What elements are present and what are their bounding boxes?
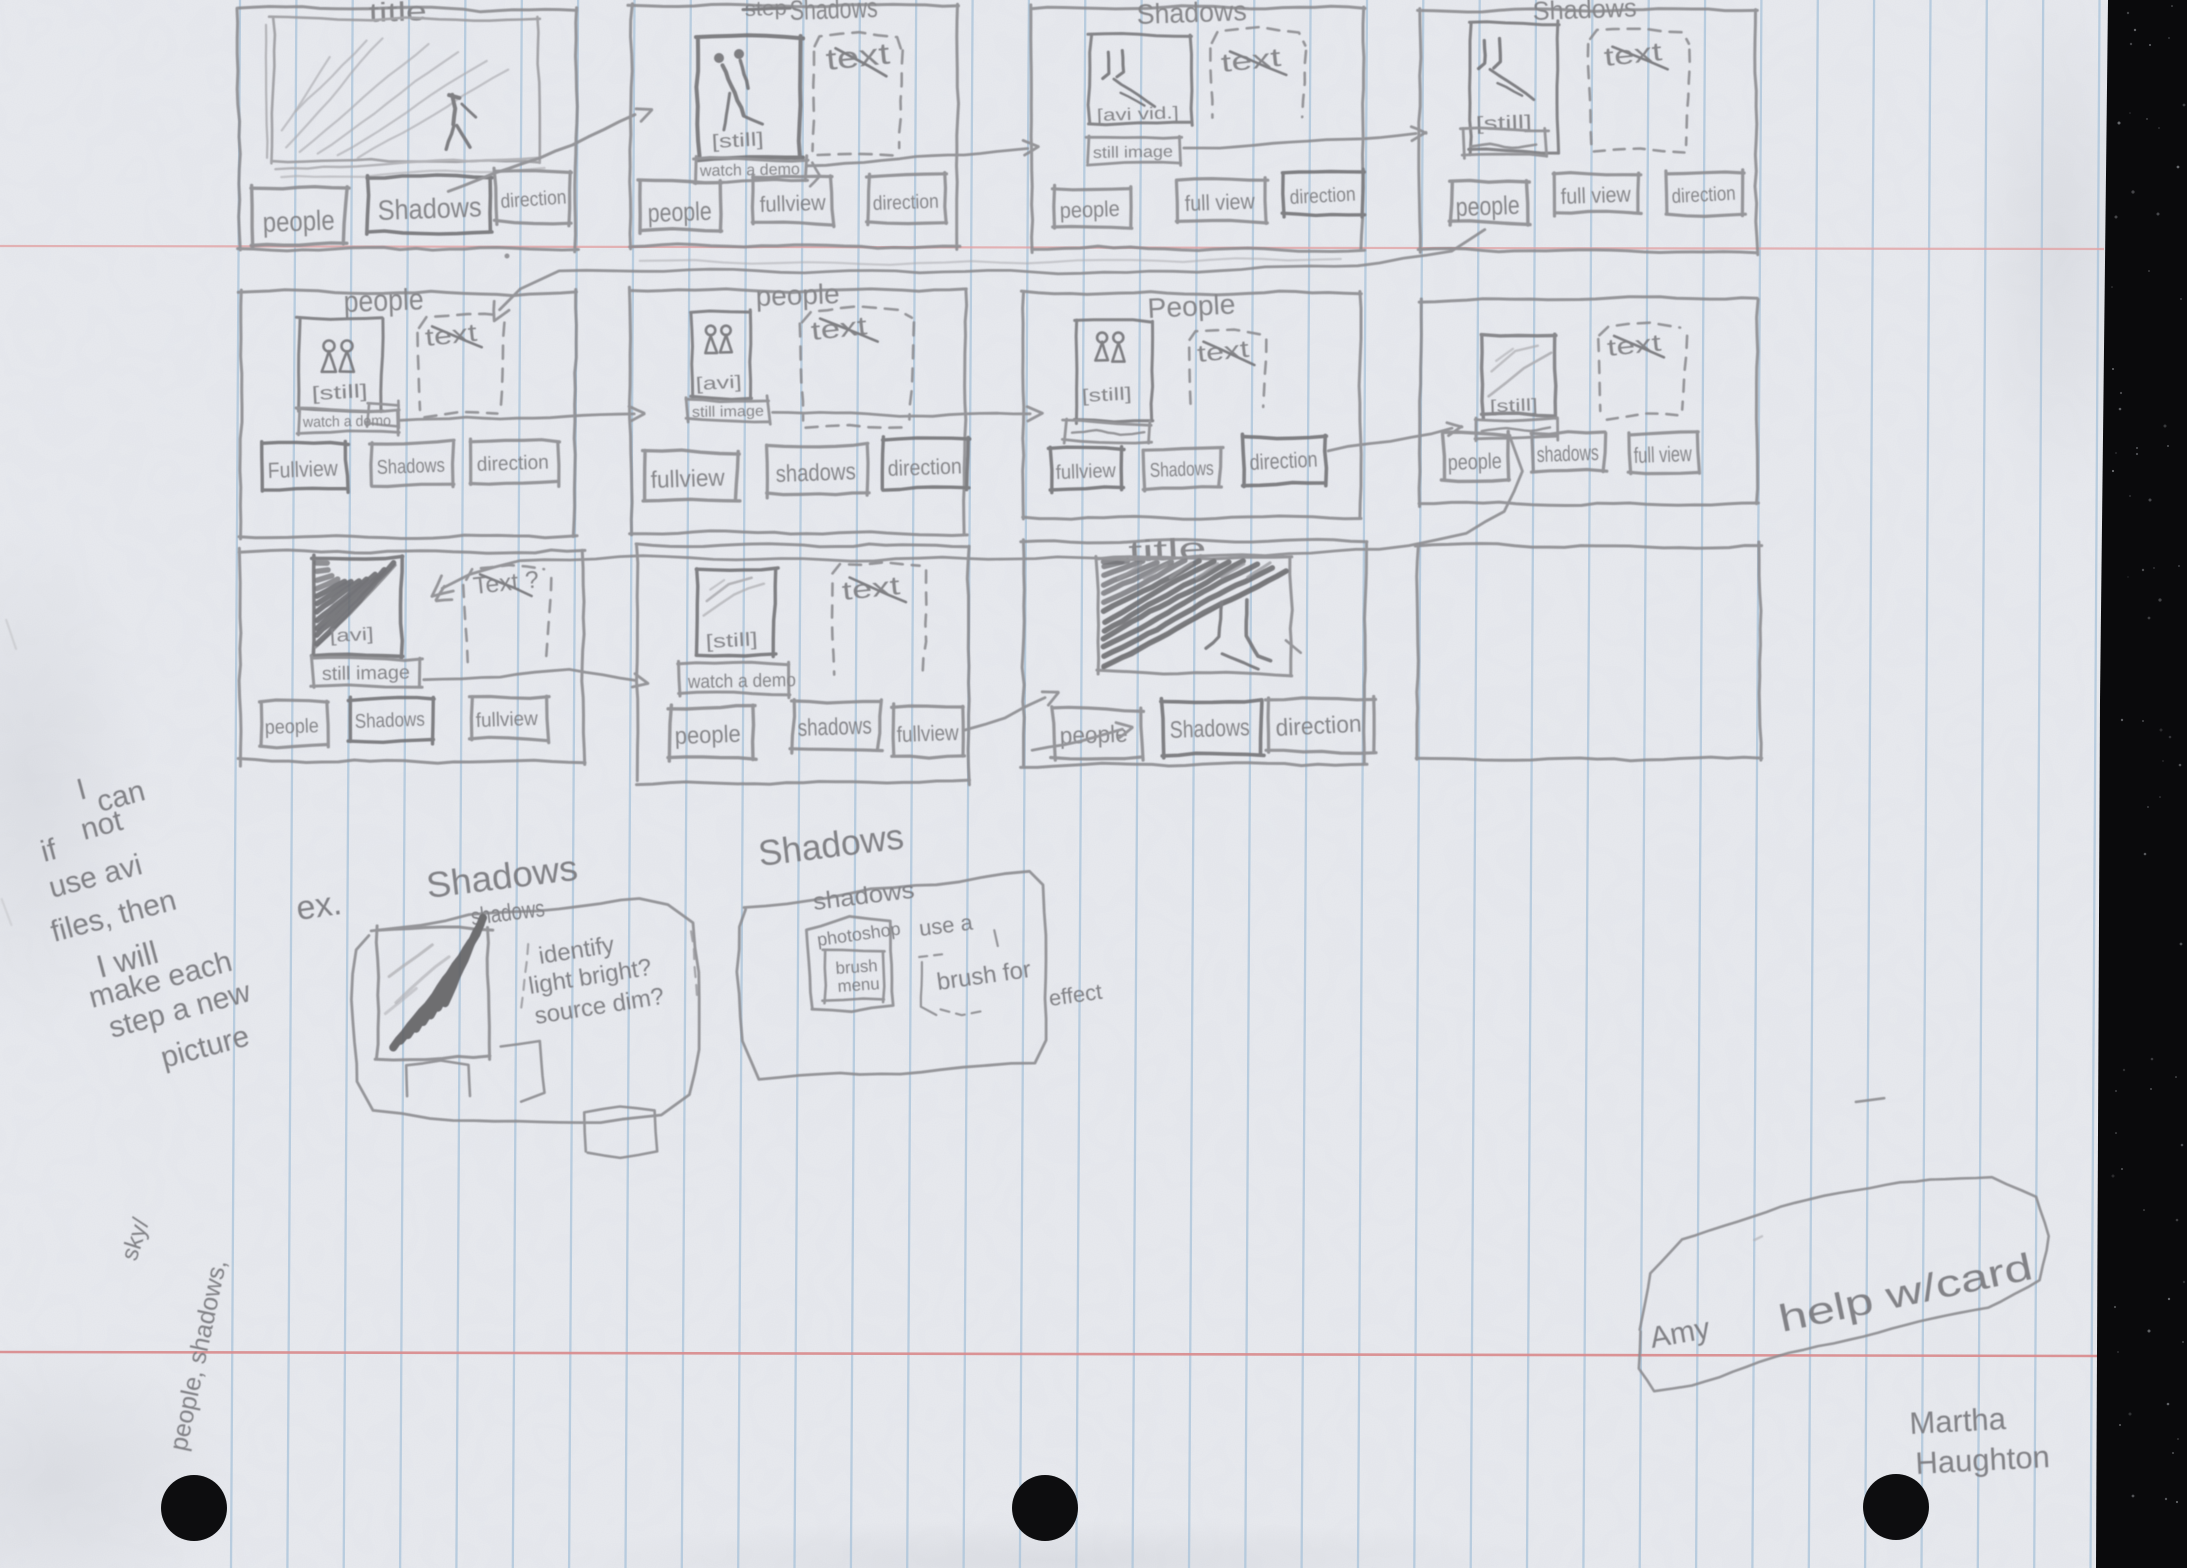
svg-text:direction: direction xyxy=(476,451,549,475)
svg-text:direction: direction xyxy=(872,191,939,215)
svg-text:direction: direction xyxy=(1275,711,1362,742)
svg-text:[still]: [still] xyxy=(1081,383,1132,406)
svg-text:people: people xyxy=(1059,196,1120,223)
svg-text:fullview: fullview xyxy=(759,190,826,217)
svg-text:direction: direction xyxy=(500,186,567,213)
svg-text:direction: direction xyxy=(1289,184,1356,209)
svg-text:Shadows: Shadows xyxy=(377,191,482,226)
svg-text:shadows: shadows xyxy=(1536,440,1599,467)
svg-text:fullview: fullview xyxy=(650,464,726,494)
svg-text:Shadows: Shadows xyxy=(1169,714,1250,744)
svg-text:People: People xyxy=(1147,288,1237,324)
svg-text:[avi vid.]: [avi vid.] xyxy=(1096,103,1179,125)
svg-text:people: people xyxy=(1455,190,1520,222)
svg-text:watch a demo: watch a demo xyxy=(687,670,796,693)
svg-text:title: title xyxy=(368,0,427,28)
svg-text:Shadows: Shadows xyxy=(1149,458,1214,482)
svg-text:[avi]: [avi] xyxy=(695,372,742,394)
svg-text:Fullview: Fullview xyxy=(267,456,338,483)
svg-text:Haughton: Haughton xyxy=(1915,1439,2051,1481)
svg-text:fullview: fullview xyxy=(475,708,538,732)
svg-text:[still]: [still] xyxy=(1489,395,1538,416)
svg-text:menu: menu xyxy=(837,974,880,996)
svg-text:people: people xyxy=(755,278,840,312)
svg-text:[still]: [still] xyxy=(711,129,764,153)
svg-text:people: people xyxy=(262,205,335,238)
svg-text:full view: full view xyxy=(1633,441,1692,468)
svg-text:people: people xyxy=(1059,721,1128,750)
svg-text:people: people xyxy=(647,196,712,228)
svg-text:Shadows: Shadows xyxy=(1532,0,1637,26)
svg-text:Shadows: Shadows xyxy=(376,455,445,479)
svg-text:Shadows: Shadows xyxy=(354,709,425,733)
svg-text:direction: direction xyxy=(1671,183,1736,208)
svg-text:watch a demo: watch a demo xyxy=(302,412,391,431)
svg-text:still image: still image xyxy=(322,662,410,685)
svg-text:full view: full view xyxy=(1184,189,1255,216)
svg-text:text: text xyxy=(809,310,869,346)
svg-text:still image: still image xyxy=(1093,144,1173,162)
svg-text:direction: direction xyxy=(1249,446,1318,475)
svg-text:text: text xyxy=(824,37,892,77)
svg-text:full view: full view xyxy=(1560,182,1631,209)
svg-text:fullview: fullview xyxy=(1055,460,1116,484)
svg-text:people: people xyxy=(264,715,319,739)
svg-text:still image: still image xyxy=(692,403,764,421)
svg-text:people: people xyxy=(674,721,741,750)
svg-text:ex.: ex. xyxy=(294,884,344,928)
svg-text:Shadows: Shadows xyxy=(1136,0,1247,30)
svg-text:shadows: shadows xyxy=(775,458,856,488)
svg-text:Shadows: Shadows xyxy=(789,0,878,26)
svg-text:people: people xyxy=(1447,448,1502,475)
svg-text:Martha: Martha xyxy=(1909,1401,2008,1441)
svg-text:direction: direction xyxy=(887,453,962,481)
svg-text:[avi]: [avi] xyxy=(329,624,374,646)
svg-text:people: people xyxy=(343,283,424,319)
svg-text:[still]: [still] xyxy=(311,381,368,405)
svg-text:[still]: [still] xyxy=(705,629,758,653)
svg-text:shadows: shadows xyxy=(797,712,872,742)
svg-text:fullview: fullview xyxy=(896,720,959,747)
